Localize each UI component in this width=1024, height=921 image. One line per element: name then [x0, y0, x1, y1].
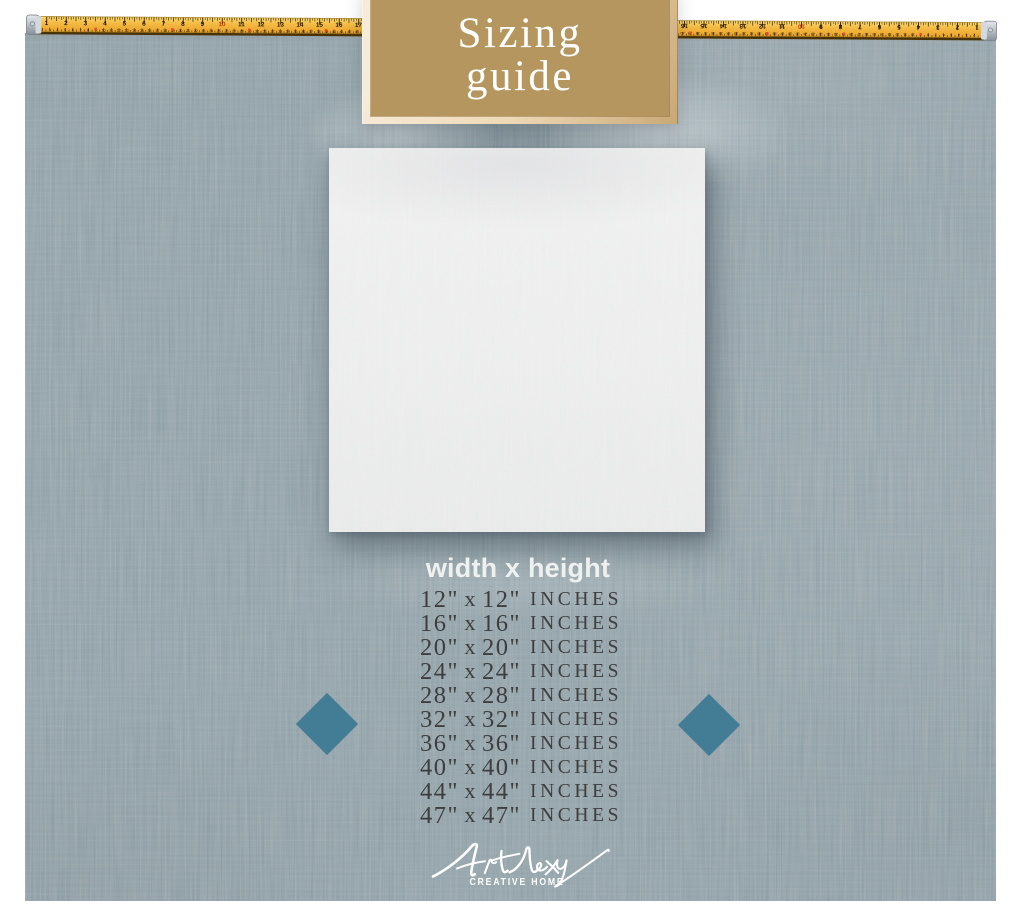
svg-text:2: 2	[955, 23, 959, 30]
svg-text:5: 5	[897, 23, 901, 30]
svg-text:2: 2	[64, 20, 68, 27]
svg-text:12: 12	[758, 22, 766, 29]
svg-text:11: 11	[903, 32, 907, 36]
svg-text:5: 5	[64, 28, 66, 32]
svg-text:37: 37	[309, 30, 313, 34]
svg-text:10: 10	[797, 22, 805, 29]
svg-text:4: 4	[56, 28, 58, 32]
svg-text:26: 26	[788, 32, 792, 36]
svg-text:38: 38	[317, 30, 321, 34]
svg-text:25: 25	[217, 29, 221, 33]
svg-text:3: 3	[84, 20, 88, 27]
svg-text:3: 3	[936, 23, 940, 30]
svg-text:42: 42	[347, 30, 351, 34]
svg-text:25: 25	[796, 32, 800, 36]
svg-text:7: 7	[162, 21, 166, 28]
svg-text:21: 21	[826, 32, 830, 36]
svg-text:8: 8	[927, 33, 929, 37]
svg-text:1: 1	[45, 20, 49, 27]
svg-text:18: 18	[163, 29, 167, 33]
svg-text:34: 34	[286, 30, 290, 34]
svg-text:3: 3	[49, 28, 51, 32]
svg-text:10: 10	[911, 33, 915, 37]
svg-text:12: 12	[895, 32, 899, 36]
svg-text:23: 23	[201, 29, 205, 33]
svg-text:13: 13	[888, 32, 892, 36]
svg-text:6: 6	[72, 28, 74, 32]
svg-text:10: 10	[218, 21, 226, 28]
svg-text:11: 11	[238, 21, 245, 28]
svg-text:23: 23	[811, 32, 815, 36]
svg-text:17: 17	[857, 32, 861, 36]
svg-text:15: 15	[872, 32, 876, 36]
svg-text:28: 28	[240, 29, 244, 33]
svg-text:32: 32	[742, 31, 746, 35]
svg-text:18: 18	[849, 32, 853, 36]
svg-text:16: 16	[148, 29, 152, 33]
svg-text:12: 12	[117, 29, 121, 33]
svg-text:11: 11	[778, 22, 785, 29]
svg-text:22: 22	[194, 29, 198, 33]
svg-text:33: 33	[734, 31, 738, 35]
svg-text:6: 6	[943, 33, 945, 37]
svg-text:22: 22	[819, 32, 823, 36]
svg-text:20: 20	[834, 32, 838, 36]
svg-text:15: 15	[700, 22, 708, 29]
svg-text:41: 41	[340, 30, 344, 34]
svg-text:24: 24	[209, 29, 213, 33]
svg-text:8: 8	[181, 21, 185, 28]
svg-text:4: 4	[916, 23, 920, 30]
svg-text:26: 26	[224, 29, 228, 33]
svg-text:20: 20	[178, 29, 182, 33]
svg-text:14: 14	[296, 22, 304, 29]
svg-text:31: 31	[750, 31, 754, 35]
svg-text:30: 30	[757, 32, 761, 36]
svg-text:7: 7	[858, 23, 862, 30]
svg-text:5: 5	[950, 33, 952, 37]
svg-text:36: 36	[711, 31, 715, 35]
svg-text:11: 11	[109, 29, 113, 33]
svg-text:14: 14	[132, 29, 136, 33]
svg-text:17: 17	[155, 29, 159, 33]
svg-text:37: 37	[703, 31, 707, 35]
svg-text:8: 8	[87, 28, 89, 32]
svg-text:7: 7	[935, 33, 937, 37]
svg-text:15: 15	[316, 22, 324, 29]
svg-text:CREATIVE HOME: CREATIVE HOME	[470, 877, 565, 888]
svg-text:4: 4	[103, 20, 107, 27]
svg-text:10: 10	[102, 28, 106, 32]
svg-text:31: 31	[263, 30, 267, 34]
svg-text:2: 2	[973, 33, 975, 37]
svg-text:36: 36	[301, 30, 305, 34]
svg-text:40: 40	[680, 31, 684, 35]
svg-text:24: 24	[803, 32, 807, 36]
svg-text:28: 28	[773, 32, 777, 36]
svg-text:34: 34	[727, 31, 731, 35]
svg-text:16: 16	[865, 32, 869, 36]
svg-text:43: 43	[355, 30, 359, 34]
svg-text:16: 16	[335, 22, 343, 29]
svg-text:1: 1	[975, 24, 979, 31]
svg-text:32: 32	[271, 30, 275, 34]
svg-text:3: 3	[966, 33, 968, 37]
svg-text:13: 13	[125, 29, 129, 33]
svg-text:27: 27	[780, 32, 784, 36]
svg-text:6: 6	[142, 21, 146, 28]
svg-text:33: 33	[278, 30, 282, 34]
svg-text:13: 13	[739, 22, 747, 29]
svg-text:7: 7	[80, 28, 82, 32]
svg-text:35: 35	[294, 30, 298, 34]
svg-text:15: 15	[140, 29, 144, 33]
svg-text:14: 14	[880, 32, 884, 36]
svg-text:5: 5	[123, 21, 127, 28]
svg-text:8: 8	[838, 23, 842, 30]
svg-text:9: 9	[201, 21, 205, 28]
svg-text:4: 4	[958, 33, 960, 37]
svg-text:40: 40	[332, 30, 336, 34]
svg-text:27: 27	[232, 29, 236, 33]
svg-text:30: 30	[255, 29, 259, 33]
svg-text:16: 16	[680, 22, 688, 29]
svg-text:9: 9	[819, 23, 823, 30]
svg-text:21: 21	[186, 29, 190, 33]
svg-text:13: 13	[277, 22, 285, 29]
svg-text:14: 14	[719, 22, 727, 29]
svg-text:38: 38	[696, 31, 700, 35]
svg-text:12: 12	[257, 21, 265, 28]
svg-text:6: 6	[877, 23, 881, 30]
svg-text:35: 35	[719, 31, 723, 35]
